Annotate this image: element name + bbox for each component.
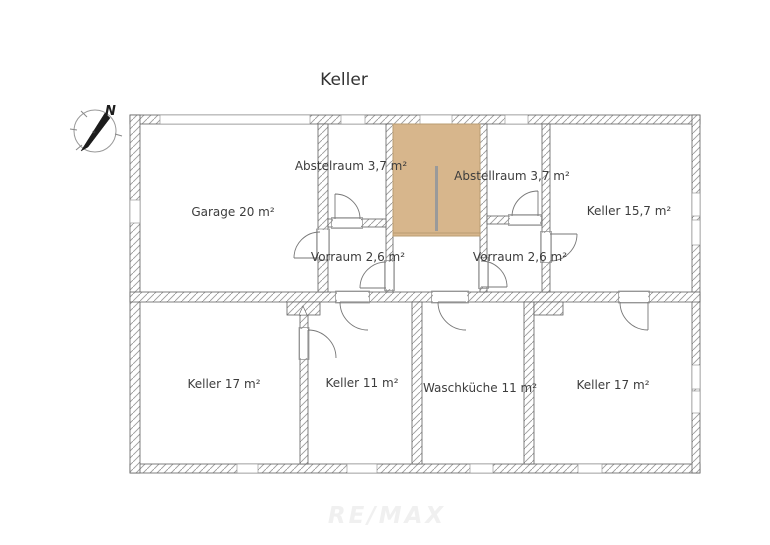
floorplan-page: Keller (0, 0, 770, 545)
window-top-2 (420, 115, 452, 124)
wall-waschkueche-keller17r (524, 302, 534, 464)
wall-keller17l-keller11 (300, 302, 308, 464)
window-left-1 (130, 200, 140, 223)
compass-center-dot (93, 131, 96, 134)
compass-icon: N (70, 104, 122, 152)
window-bottom-4 (578, 464, 602, 473)
wall-rightcol-keller (542, 124, 550, 292)
chimney-block-right (534, 302, 563, 315)
wall-outer-bottom (130, 464, 700, 473)
window-bottom-1 (237, 464, 258, 473)
door-opening-keller11-keller17l (300, 329, 308, 358)
door-opening-abstellraum-right (510, 216, 540, 224)
door-opening-vorraum-right (480, 259, 487, 287)
stairs (393, 124, 480, 236)
door-opening-vorraum-left (386, 262, 393, 289)
window-bottom-2 (347, 464, 377, 473)
window-top-1 (341, 115, 365, 124)
wall-garage-right (318, 124, 328, 292)
garage-gate-opening (160, 115, 310, 124)
wall-middle (130, 292, 700, 302)
wall-keller11-waschkueche (412, 302, 422, 464)
window-right-2 (692, 220, 700, 245)
window-bottom-3 (470, 464, 493, 473)
door-opening-garage (318, 230, 328, 259)
compass-north-label: N (105, 104, 116, 119)
door-opening-keller11 (337, 292, 368, 302)
door-opening-abstelraum-left (333, 219, 361, 227)
window-right-3 (692, 365, 700, 389)
door-opening-waschkueche (433, 292, 467, 302)
door-opening-vorraum-keller157 (542, 233, 550, 261)
remax-watermark: RE/MAX (287, 503, 487, 529)
window-top-3 (505, 115, 528, 124)
window-right-4 (692, 391, 700, 413)
floorplan-canvas: N (0, 0, 770, 545)
window-right-1 (692, 193, 700, 216)
door-opening-keller17r (620, 292, 648, 302)
